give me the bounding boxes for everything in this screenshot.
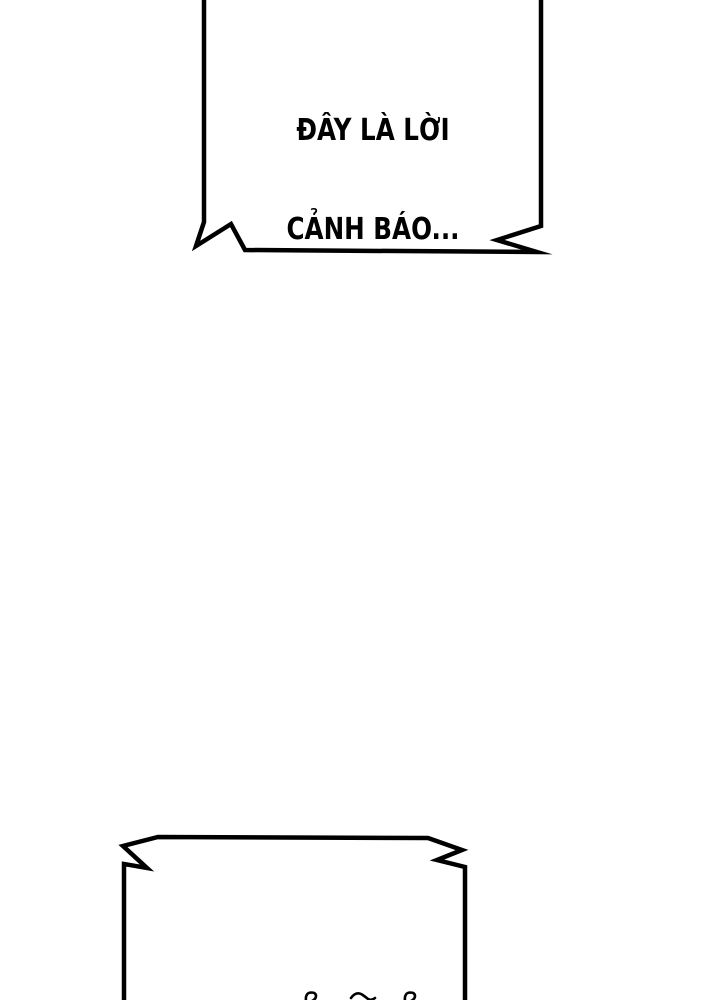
warning-line-1: ĐÂY LÀ LỜI [234, 114, 511, 147]
comic-page: ĐÂY LÀ LỜI CẢNH BÁO... TOÀN BỘ CÔNG DÂN [0, 0, 720, 1000]
citizens-speech-text: TOÀN BỘ CÔNG DÂN [155, 959, 435, 1000]
warning-line-2: CẢNH BÁO... [234, 213, 511, 246]
warning-speech-text: ĐÂY LÀ LỜI CẢNH BÁO... [234, 48, 511, 312]
